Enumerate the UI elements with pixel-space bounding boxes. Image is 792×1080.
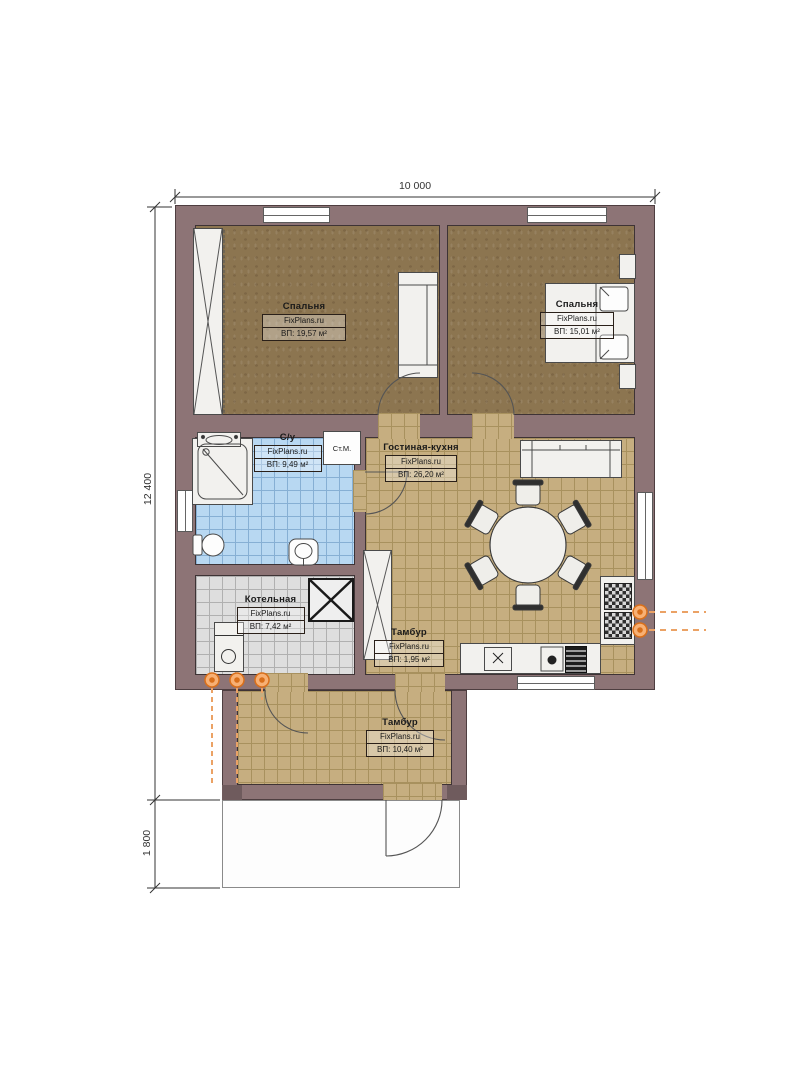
room-label-vestibule-entry: Тамбур FixPlans.ru ВП: 10,40 м² — [365, 717, 435, 757]
room-area: ВП: 1,95 м² — [375, 654, 443, 666]
window-kitchen — [517, 676, 595, 690]
ventilation-shaft — [308, 578, 354, 622]
dimension-height-porch: 1 800 — [141, 815, 153, 871]
door-opening-entrance — [383, 783, 442, 800]
room-info-box: FixPlans.ru ВП: 10,40 м² — [366, 730, 434, 757]
wardrobe-bedroom-1 — [193, 228, 223, 415]
washing-machine-label: Ст.М. — [333, 444, 351, 453]
shower-cabin — [192, 438, 253, 505]
window-bedroom-2 — [527, 207, 607, 223]
vestibule-corner-right — [447, 785, 467, 800]
room-label-bedroom-2: Спальня FixPlans.ru ВП: 15,01 м² — [527, 299, 627, 339]
porch — [222, 800, 460, 888]
room-name: Спальня — [254, 301, 354, 312]
room-site: FixPlans.ru — [263, 315, 345, 328]
sofa-living — [520, 440, 622, 478]
door-opening-bathroom — [353, 470, 367, 512]
room-info-box: FixPlans.ru ВП: 7,42 м² — [237, 607, 305, 634]
room-site: FixPlans.ru — [375, 641, 443, 654]
room-label-bedroom-1: Спальня FixPlans.ru ВП: 19,57 м² — [254, 301, 354, 341]
door-opening-vestibule-inner — [395, 673, 445, 692]
room-area: ВП: 10,40 м² — [367, 744, 433, 756]
room-name: Тамбур — [373, 627, 445, 638]
room-name: Тамбур — [365, 717, 435, 728]
room-name: Гостиная-кухня — [374, 442, 468, 453]
kitchen-hob — [484, 647, 512, 671]
room-site: FixPlans.ru — [255, 446, 321, 459]
room-site: FixPlans.ru — [386, 456, 456, 469]
boiler-dial — [221, 649, 236, 664]
door-opening-bedroom-2 — [472, 413, 514, 439]
nightstand-bottom — [619, 364, 636, 389]
room-site: FixPlans.ru — [541, 313, 613, 326]
room-area: ВП: 26,20 м² — [386, 469, 456, 481]
sofa-bedroom-1 — [398, 272, 438, 378]
window-bedroom-1 — [263, 207, 330, 223]
room-site: FixPlans.ru — [238, 608, 304, 621]
room-label-living-kitchen: Гостиная-кухня FixPlans.ru ВП: 26,20 м² — [374, 442, 468, 482]
stove-burner-top — [604, 583, 632, 610]
room-name: Спальня — [527, 299, 627, 310]
floor-plan-canvas: Ст.М. Спальня FixPlans.ru ВП: 19,57 м² С… — [0, 0, 792, 1080]
door-opening-boiler — [265, 673, 308, 692]
boiler-panel-line — [215, 635, 243, 636]
room-area: ВП: 7,42 м² — [238, 621, 304, 633]
room-area: ВП: 15,01 м² — [541, 326, 613, 338]
dimension-height-main: 12 400 — [142, 461, 154, 517]
room-label-bathroom: С/у FixPlans.ru ВП: 9,49 м² — [246, 432, 329, 472]
bathroom-sink — [197, 432, 241, 447]
nightstand-top — [619, 254, 636, 279]
dimension-width: 10 000 — [355, 180, 475, 192]
room-area: ВП: 9,49 м² — [255, 459, 321, 471]
room-site: FixPlans.ru — [367, 731, 433, 744]
room-name: Котельная — [233, 594, 308, 605]
room-info-box: FixPlans.ru ВП: 15,01 м² — [540, 312, 614, 339]
window-bathroom — [177, 490, 193, 532]
room-label-boiler-room: Котельная FixPlans.ru ВП: 7,42 м² — [233, 594, 308, 634]
vestibule-corner-left — [222, 785, 242, 800]
room-info-box: FixPlans.ru ВП: 19,57 м² — [262, 314, 346, 341]
room-info-box: FixPlans.ru ВП: 9,49 м² — [254, 445, 322, 472]
dishwasher — [565, 646, 587, 673]
door-opening-bedroom-1 — [378, 413, 420, 439]
room-name: С/у — [246, 432, 329, 443]
room-label-vestibule-inner: Тамбур FixPlans.ru ВП: 1,95 м² — [373, 627, 445, 667]
window-living — [637, 492, 653, 580]
room-info-box: FixPlans.ru ВП: 1,95 м² — [374, 640, 444, 667]
room-info-box: FixPlans.ru ВП: 26,20 м² — [385, 455, 457, 482]
room-area: ВП: 19,57 м² — [263, 328, 345, 340]
stove-burner-bottom — [604, 612, 632, 639]
